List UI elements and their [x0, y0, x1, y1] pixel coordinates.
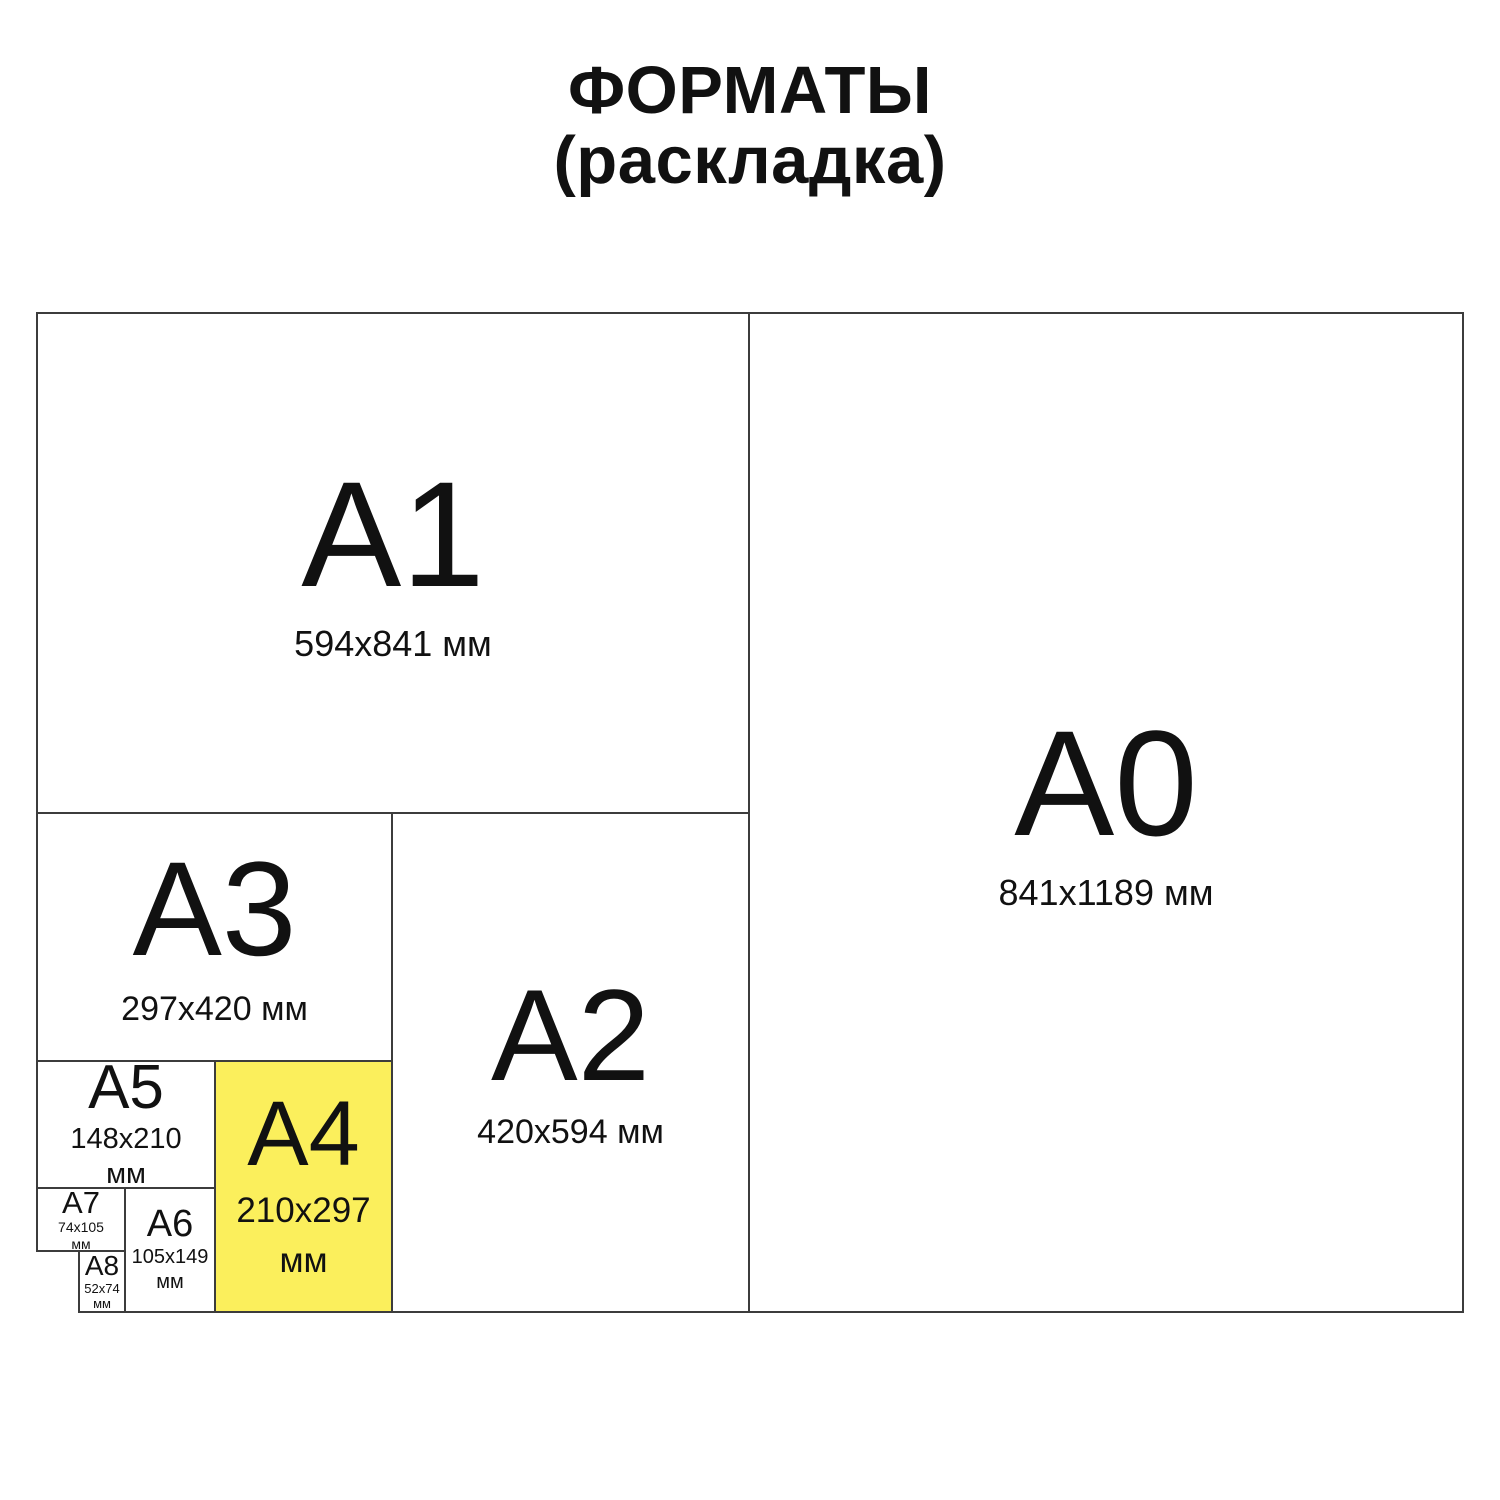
format-label-a1: A1	[301, 459, 484, 609]
format-label-a6: A6	[147, 1205, 193, 1243]
format-box-a2: A2 420x594 мм	[391, 812, 750, 1313]
format-label-a4: A4	[247, 1088, 360, 1180]
format-dimensions-a2: 420x594 мм	[477, 1110, 664, 1154]
format-dimensions-a1: 594x841 мм	[294, 621, 492, 668]
format-box-a1: A1 594x841 мм	[36, 312, 750, 814]
format-dimensions-a4: 210x297	[236, 1186, 370, 1236]
format-label-a3: A3	[133, 843, 297, 977]
format-box-a0: A0 841x1189 мм	[748, 312, 1464, 1313]
format-dimensions-a3: 297x420 мм	[121, 987, 308, 1031]
format-box-a7: A7 74x105 мм	[36, 1187, 126, 1252]
format-box-a3: A3 297x420 мм	[36, 812, 393, 1062]
paper-formats-diagram: ФОРМАТЫ (раскладка) A1 594x841 мм A0 841…	[0, 0, 1500, 1500]
format-dimensions-a0: 841x1189 мм	[999, 870, 1214, 917]
format-unit-a8: мм	[93, 1296, 111, 1311]
format-box-a6: A6 105x149 мм	[124, 1187, 216, 1313]
format-label-a8: A8	[85, 1252, 119, 1280]
format-label-a7: A7	[62, 1187, 100, 1218]
format-box-a8: A8 52x74 мм	[78, 1250, 126, 1313]
format-label-a2: A2	[491, 970, 650, 1100]
format-dimensions-a5: 148x210	[70, 1122, 181, 1157]
format-label-a0: A0	[1014, 708, 1197, 858]
format-dimensions-a8: 52x74	[84, 1281, 119, 1296]
format-dimensions-a7: 74x105	[58, 1219, 104, 1236]
title-line-2: (раскладка)	[0, 126, 1500, 196]
title-line-1: ФОРМАТЫ	[0, 56, 1500, 126]
format-unit-a4: мм	[279, 1236, 327, 1286]
format-label-a5: A5	[88, 1057, 164, 1119]
page-title: ФОРМАТЫ (раскладка)	[0, 56, 1500, 197]
format-unit-a6: мм	[156, 1270, 184, 1295]
format-box-a5: A5 148x210 мм	[36, 1060, 216, 1189]
format-box-a4-highlighted: A4 210x297 мм	[214, 1060, 393, 1313]
format-dimensions-a6: 105x149	[132, 1245, 209, 1270]
